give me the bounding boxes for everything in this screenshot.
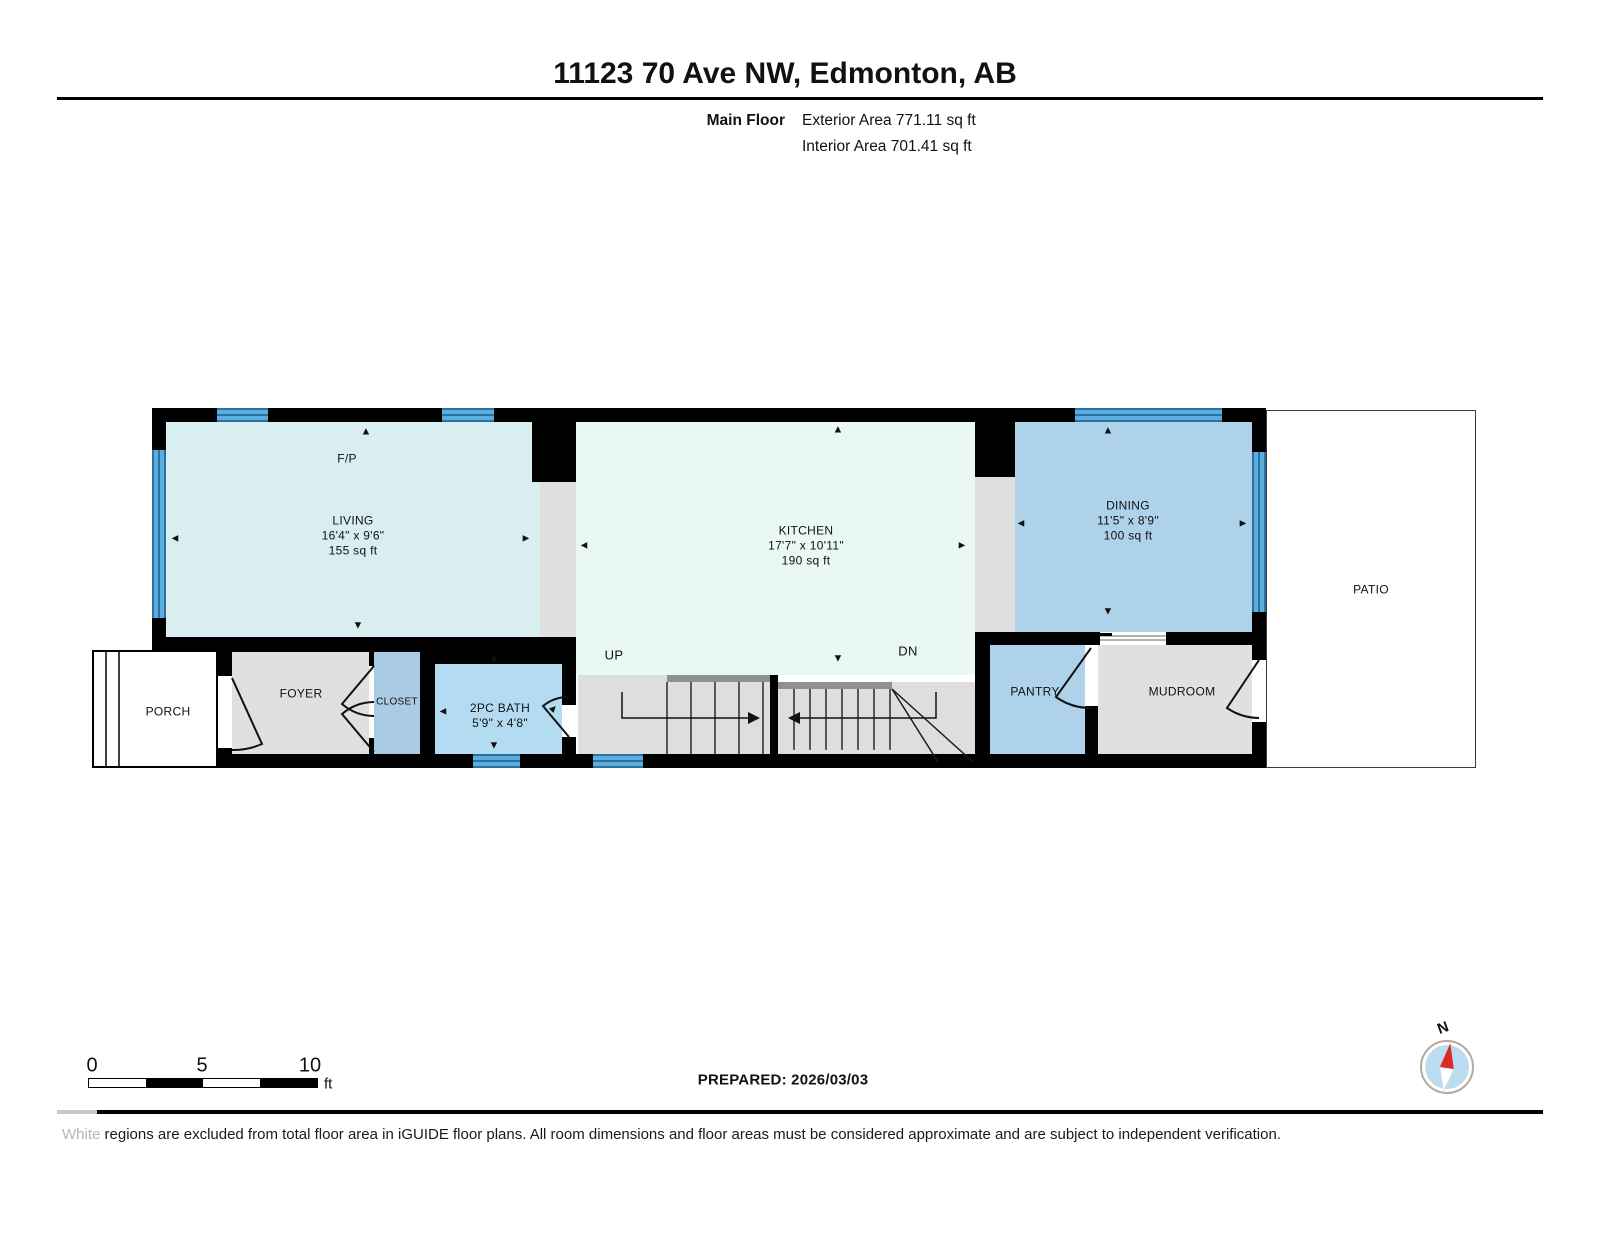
stair-down-treads <box>794 689 890 750</box>
footer-disclaimer-lead: White <box>62 1126 100 1143</box>
dimension-arrow-down-icon: ▼ <box>489 741 500 752</box>
pantry-door <box>1056 648 1091 708</box>
stair-up-label: UP <box>605 648 624 663</box>
dimension-arrow-left-icon: ◄ <box>1016 519 1027 530</box>
dimension-arrow-right-icon: ► <box>1238 519 1249 530</box>
dimension-arrow-right-icon: ► <box>957 541 968 552</box>
scale-segment <box>89 1079 146 1087</box>
scale-segment <box>146 1079 203 1087</box>
room-name: LIVING <box>322 514 385 529</box>
dimension-arrow-down-icon: ▼ <box>353 621 364 632</box>
scale-bar <box>88 1078 318 1088</box>
scale-tick-5: 5 <box>196 1055 207 1078</box>
dimension-arrow-left-icon: ◄ <box>170 534 181 545</box>
room-label-foyer: FOYER <box>280 687 323 702</box>
room-area: 100 sq ft <box>1097 529 1159 544</box>
room-label-porch: PORCH <box>146 705 191 720</box>
compass-icon <box>1412 1032 1482 1102</box>
mudroom-patio-door <box>1227 660 1259 718</box>
dimension-arrow-right-icon: ► <box>521 534 532 545</box>
room-name: KITCHEN <box>768 524 844 539</box>
fireplace-label: F/P <box>337 452 357 467</box>
stair-down-label: DN <box>898 644 917 659</box>
room-area: 155 sq ft <box>322 544 385 559</box>
footer-divider <box>57 1110 1543 1114</box>
scale-unit-label: ft <box>324 1076 332 1093</box>
footer-disclaimer: White regions are excluded from total fl… <box>62 1126 1281 1143</box>
stair-break-lines <box>892 689 973 762</box>
closet-door-upper <box>342 666 374 716</box>
prepared-date-label: PREPARED: 2026/03/03 <box>698 1072 868 1089</box>
room-label-living: LIVING 16'4" x 9'6" 155 sq ft <box>322 514 385 559</box>
dimension-arrow-up-icon: ▲ <box>833 425 844 436</box>
dimension-arrow-up-icon: ▲ <box>489 654 500 665</box>
porch-step-lines <box>106 652 119 766</box>
dimension-arrow-down-icon: ▼ <box>1103 607 1114 618</box>
room-name: DINING <box>1097 499 1159 514</box>
room-label-bath: 2PC BATH 5'9" x 4'8" <box>470 701 530 731</box>
room-dims: 5'9" x 4'8" <box>470 716 530 731</box>
floor-plan: ◄ ► ▼ ▲ ▲ ◄ ► ▼ ▲ ◄ ► ▼ ▲ ◄ ▼ ▲ F/P LIVI… <box>0 0 1600 1236</box>
room-dims: 11'5" x 8'9" <box>1097 514 1159 529</box>
room-dims: 17'7" x 10'11" <box>768 539 844 554</box>
room-label-mudroom: MUDROOM <box>1149 685 1216 700</box>
room-label-closet: CLOSET <box>376 695 418 710</box>
closet-door-lower <box>342 702 374 752</box>
dimension-arrow-down-icon: ▼ <box>833 654 844 665</box>
room-area: 190 sq ft <box>768 554 844 569</box>
foyer-door <box>232 678 262 750</box>
room-dims: 16'4" x 9'6" <box>322 529 385 544</box>
room-label-kitchen: KITCHEN 17'7" x 10'11" 190 sq ft <box>768 524 844 569</box>
scale-tick-0: 0 <box>86 1055 97 1078</box>
room-label-dining: DINING 11'5" x 8'9" 100 sq ft <box>1097 499 1159 544</box>
room-label-pantry: PANTRY <box>1010 685 1059 700</box>
dimension-arrow-left-icon: ◄ <box>438 707 449 718</box>
footer-disclaimer-text: regions are excluded from total floor ar… <box>100 1126 1281 1143</box>
sliding-door-lines <box>1100 633 1166 640</box>
dimension-arrow-left-icon: ◄ <box>579 541 590 552</box>
fireplace-arrow-icon: ▲ <box>361 427 372 438</box>
scale-segment <box>260 1079 317 1087</box>
footer-divider-gray-cap <box>57 1110 97 1114</box>
dimension-arrow-up-icon: ▲ <box>1103 426 1114 437</box>
room-label-patio: PATIO <box>1353 583 1389 598</box>
plan-linework <box>0 0 1600 1236</box>
scale-tick-10: 10 <box>299 1055 321 1078</box>
scale-segment <box>203 1079 260 1087</box>
room-name: 2PC BATH <box>470 701 530 716</box>
